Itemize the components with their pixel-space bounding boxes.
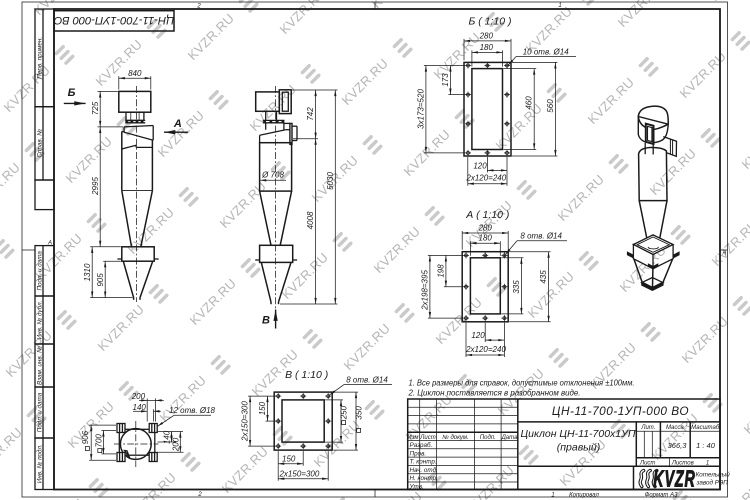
svg-text:280: 280 bbox=[478, 223, 493, 232]
svg-text:Копировал: Копировал bbox=[569, 493, 599, 499]
svg-text:198: 198 bbox=[436, 264, 445, 278]
svg-text:10 отв. Ø14: 10 отв. Ø14 bbox=[523, 48, 570, 57]
svg-text:А ( 1:10 ): А ( 1:10 ) bbox=[465, 209, 509, 221]
svg-text:Листов: Листов bbox=[671, 460, 694, 466]
svg-text:725: 725 bbox=[91, 101, 100, 115]
svg-text:Лит.: Лит. bbox=[640, 425, 655, 431]
svg-text:Масса :: Масса : bbox=[666, 425, 687, 431]
svg-text:Масштаб: Масштаб bbox=[691, 425, 720, 431]
svg-text:(правый): (правый) bbox=[557, 442, 601, 454]
svg-text:2х150=300: 2х150=300 bbox=[278, 470, 319, 479]
svg-text:Пров.: Пров. bbox=[410, 450, 427, 457]
svg-text:1: 1 bbox=[706, 460, 709, 466]
svg-text:840: 840 bbox=[128, 69, 142, 78]
svg-text:173: 173 bbox=[441, 73, 450, 87]
svg-text:Котельный: Котельный bbox=[696, 471, 731, 479]
svg-text:120: 120 bbox=[473, 161, 487, 170]
svg-text:180: 180 bbox=[480, 43, 494, 52]
svg-text:700: 700 bbox=[95, 434, 104, 448]
svg-text:Подп. и дата: Подп. и дата bbox=[36, 251, 44, 291]
svg-text:Циклон ЦН-11-700х1УП: Циклон ЦН-11-700х1УП bbox=[521, 428, 636, 440]
svg-text:435: 435 bbox=[539, 270, 548, 284]
svg-text:1 : 40: 1 : 40 bbox=[696, 441, 716, 450]
svg-text:8 отв. Ø14: 8 отв. Ø14 bbox=[520, 232, 562, 241]
svg-text:Ø 708: Ø 708 bbox=[261, 171, 284, 180]
svg-text:Б ( 1:10 ): Б ( 1:10 ) bbox=[468, 16, 511, 28]
svg-text:140: 140 bbox=[133, 403, 147, 412]
svg-text:завод РЭП: завод РЭП bbox=[696, 479, 729, 487]
svg-text:3х173=520: 3х173=520 bbox=[416, 89, 425, 129]
svg-text:2х120=240: 2х120=240 bbox=[465, 345, 506, 354]
svg-text:Перв. примен.: Перв. примен. bbox=[37, 37, 44, 79]
svg-text:Н. контр.: Н. контр. bbox=[410, 475, 438, 482]
svg-text:280: 280 bbox=[479, 31, 494, 40]
svg-text:8 отв. Ø14: 8 отв. Ø14 bbox=[346, 376, 388, 385]
svg-text:2х198=395: 2х198=395 bbox=[420, 270, 429, 311]
svg-text:366,3: 366,3 bbox=[668, 441, 688, 450]
svg-text:№ докум.: № докум. bbox=[442, 434, 468, 441]
svg-text:335: 335 bbox=[512, 280, 521, 294]
svg-text:150: 150 bbox=[282, 455, 296, 464]
svg-text:2х120=240: 2х120=240 bbox=[465, 174, 506, 183]
svg-text:905: 905 bbox=[96, 273, 105, 287]
svg-text:Лист: Лист bbox=[419, 435, 435, 441]
svg-text:Взам. инв. №: Взам. инв. № bbox=[37, 346, 44, 385]
svg-text:Утв.: Утв. bbox=[409, 484, 424, 491]
svg-text:1: 1 bbox=[551, 493, 554, 499]
svg-text:Лист: Лист bbox=[639, 460, 655, 466]
svg-text:Инв. № подл.: Инв. № подл. bbox=[36, 444, 44, 483]
svg-text:5030: 5030 bbox=[326, 172, 335, 190]
svg-text:560: 560 bbox=[546, 99, 555, 113]
svg-text:1. Все размеры для справок, до: 1. Все размеры для справок, допустимые о… bbox=[409, 378, 635, 387]
svg-text:742: 742 bbox=[306, 107, 315, 121]
svg-text:Подп.: Подп. bbox=[480, 435, 496, 441]
svg-text:200: 200 bbox=[131, 392, 146, 401]
svg-text:250: 250 bbox=[339, 405, 348, 420]
svg-text:Изм: Изм bbox=[407, 435, 418, 441]
svg-text:2: 2 bbox=[197, 492, 202, 498]
svg-text:120: 120 bbox=[471, 331, 485, 340]
svg-text:Инв. № дубл.: Инв. № дубл. bbox=[36, 301, 44, 340]
svg-text:Разраб.: Разраб. bbox=[410, 441, 433, 449]
svg-text:Справ. №: Справ. № bbox=[37, 129, 44, 158]
svg-text:ЦН-11-700-1УП-000 ВО: ЦН-11-700-1УП-000 ВО bbox=[552, 404, 689, 418]
svg-text:Т. контр.: Т. контр. bbox=[410, 459, 437, 466]
svg-text:1310: 1310 bbox=[83, 263, 92, 281]
svg-text:В: В bbox=[262, 315, 270, 327]
svg-text:А: А bbox=[173, 118, 182, 130]
svg-text:2. Циклон поставляется в разоб: 2. Циклон поставляется в разобранном вид… bbox=[407, 389, 580, 398]
svg-text:А: А bbox=[721, 251, 726, 257]
svg-text:Нач. отд.: Нач. отд. bbox=[410, 466, 438, 474]
svg-text:906: 906 bbox=[81, 430, 90, 444]
svg-text:12 отв. Ø18: 12 отв. Ø18 bbox=[169, 406, 216, 415]
svg-text:350: 350 bbox=[354, 406, 363, 420]
svg-text:150: 150 bbox=[258, 401, 267, 415]
svg-text:2995: 2995 bbox=[91, 177, 100, 196]
svg-text:В ( 1:10 ): В ( 1:10 ) bbox=[285, 369, 328, 381]
svg-text:Дата: Дата bbox=[501, 435, 518, 441]
svg-text:Подп. и дата: Подп. и дата bbox=[36, 392, 44, 432]
svg-text:140: 140 bbox=[163, 430, 172, 444]
svg-text:KVZR: KVZR bbox=[653, 467, 696, 492]
svg-text:460: 460 bbox=[525, 96, 534, 110]
svg-text:4008: 4008 bbox=[306, 211, 315, 229]
svg-text:180: 180 bbox=[479, 234, 493, 243]
svg-text:Формат А3: Формат А3 bbox=[645, 493, 678, 499]
svg-text:Б: Б bbox=[68, 87, 76, 99]
svg-text:2х150=300: 2х150=300 bbox=[241, 401, 250, 442]
svg-text:ЦН-11-700-1УП-000 ВО: ЦН-11-700-1УП-000 ВО bbox=[53, 14, 174, 26]
svg-text:200: 200 bbox=[171, 437, 180, 452]
